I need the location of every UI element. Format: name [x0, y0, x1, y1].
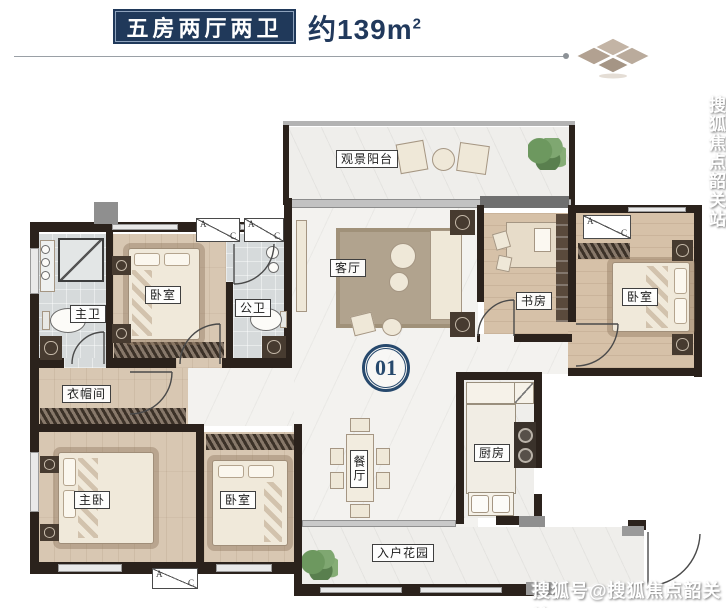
- divider-end-dot: [563, 53, 569, 59]
- corridor-floor: [188, 368, 294, 426]
- dining-chair: [350, 504, 370, 518]
- bedroom-top-label: 卧室: [145, 286, 181, 304]
- shower-stall: [58, 238, 104, 282]
- faucet-knob: [41, 258, 50, 267]
- balcony-plant: [528, 138, 566, 170]
- ac-platform-1: A C: [196, 218, 240, 242]
- garden-window-1: [320, 587, 402, 593]
- bath-cabinet: [40, 336, 62, 360]
- living-planter-bottom: [450, 312, 475, 337]
- bedroom-right-door-gap: [568, 322, 576, 368]
- dining-chair: [330, 472, 344, 489]
- publicbath-door-gap: [226, 240, 233, 282]
- dining-chair: [376, 472, 390, 489]
- kitchen-counter-top: [466, 382, 516, 404]
- pillow: [218, 465, 244, 478]
- masterbath-door-gap: [64, 358, 106, 368]
- sink-bowl: [492, 495, 510, 513]
- hall-lower-left-wall: [294, 424, 302, 590]
- sink-bowl: [471, 495, 489, 513]
- master-bath-label: 主卫: [70, 305, 106, 323]
- nightstand-planter: [672, 334, 693, 355]
- sofa: [430, 230, 462, 320]
- living-planter-top: [450, 210, 475, 235]
- balcony-right-wall: [569, 125, 575, 205]
- ac-platform-3: A C: [583, 215, 631, 239]
- study-label: 书房: [516, 292, 552, 310]
- right-outer-wall: [694, 205, 702, 377]
- stove-burner: [518, 428, 533, 443]
- study-monitor: [534, 228, 551, 252]
- bed-runner: [264, 482, 282, 542]
- garden-plant: [302, 550, 338, 580]
- unit-number: 01: [375, 355, 397, 381]
- faucet-knob: [266, 246, 279, 259]
- kitchen-fridge: [514, 382, 534, 404]
- coffee-table-large: [390, 243, 416, 269]
- nightstand-planter: [672, 240, 693, 261]
- balcony-floor: [289, 127, 569, 201]
- bottom-window-1: [58, 564, 122, 572]
- pillow: [248, 465, 274, 478]
- cloakroom-bottom-wall: [30, 424, 196, 432]
- area-value: 约139m: [308, 14, 413, 45]
- master-bedroom-label: 主卧: [74, 491, 110, 509]
- ac-letter-c: C: [230, 231, 236, 241]
- tv-console: [296, 220, 307, 312]
- balcony-door-frame: [480, 196, 569, 208]
- ac-letter-c: C: [188, 578, 194, 588]
- study-door-gap: [480, 334, 514, 342]
- ac-letter-a: A: [156, 569, 163, 579]
- bottom-window-2: [216, 564, 272, 572]
- living-room-label: 客厅: [330, 259, 366, 277]
- garden-window-2: [420, 587, 502, 593]
- garden-window-strip: [302, 520, 456, 527]
- garden-gray-block: [519, 516, 545, 527]
- balcony-cushion-1: [396, 140, 429, 174]
- masterbed-bedroom-wall: [196, 424, 204, 572]
- area-exponent: 2: [413, 16, 422, 33]
- entry-door-frame-top: [622, 526, 644, 536]
- pillow: [63, 458, 76, 486]
- nightstand-planter: [112, 324, 131, 343]
- balcony-label: 观景阳台: [336, 150, 398, 168]
- side-watermark: 搜狐焦点韶关站: [703, 96, 726, 246]
- ac-letter-c: C: [274, 231, 280, 241]
- kitchen-passage-floor: [478, 342, 570, 374]
- balcony-table: [432, 148, 455, 171]
- dining-room-label: 餐厅: [350, 450, 368, 488]
- nightstand-planter: [112, 256, 131, 275]
- cloakroom-rail: [40, 408, 186, 424]
- header-divider-line: [14, 56, 565, 57]
- toilet-tank: [42, 311, 50, 330]
- bedroom-bottom-wardrobe: [206, 434, 294, 450]
- dining-chair: [350, 418, 370, 432]
- floorplan-page: 五房两厅两卫 约139m2: [0, 0, 726, 608]
- ac-letter-a: A: [248, 219, 255, 229]
- left-window-2: [30, 452, 39, 512]
- bottom-watermark: 搜狐号@搜狐焦点韶关站: [532, 577, 726, 608]
- pillow: [134, 253, 160, 266]
- unit-type-banner: 五房两厅两卫: [113, 9, 296, 44]
- nightstand-planter: [40, 524, 59, 541]
- faucet-knob: [268, 262, 279, 273]
- ac-platform-2: A C: [244, 218, 284, 242]
- study-left-wall: [477, 205, 484, 302]
- bedroom-right-bottom-wall: [568, 368, 702, 376]
- coffee-table-small: [389, 272, 409, 292]
- left-window-1: [30, 248, 39, 294]
- ac-letter-a: A: [587, 216, 594, 226]
- ac-letter-a: A: [200, 219, 207, 229]
- diamond-ornament-icon: [574, 36, 652, 80]
- bedroom-top-door-gap: [176, 358, 222, 368]
- cloakroom-label: 衣帽间: [62, 385, 111, 403]
- study-bookshelf: [556, 214, 568, 322]
- dining-chair: [330, 448, 344, 465]
- pillow: [674, 268, 687, 294]
- pillow: [164, 253, 190, 266]
- top-window-1: [112, 224, 178, 230]
- facade-pillar: [94, 202, 118, 224]
- nightstand-planter: [40, 456, 59, 473]
- balcony-railing: [283, 121, 575, 126]
- kitchen-top-wall: [456, 372, 542, 380]
- public-bath-label: 公卫: [235, 299, 271, 317]
- unit-number-badge: 01: [362, 344, 410, 392]
- kitchen-left-wall: [456, 372, 464, 524]
- faucet-knob: [41, 245, 50, 254]
- bedroom-right-label: 卧室: [622, 288, 658, 306]
- ac-platform-4: A C: [152, 568, 198, 589]
- faucet-knob: [41, 271, 50, 280]
- bedroom-top-wardrobe: [114, 342, 224, 358]
- right-bedroom-window: [628, 207, 686, 212]
- area-text: 约139m2: [308, 8, 422, 48]
- dining-chair: [376, 448, 390, 465]
- bedroom-bottom-label: 卧室: [220, 491, 256, 509]
- balcony-left-wall: [283, 125, 289, 205]
- bedroom-right-wardrobe: [578, 243, 630, 259]
- entry-garden-label: 入户花园: [372, 544, 434, 562]
- pillow: [674, 298, 687, 324]
- balcony-cushion-2: [456, 142, 490, 175]
- bath-cabinet: [262, 336, 286, 358]
- kitchen-label: 厨房: [474, 444, 510, 462]
- stove-burner: [518, 448, 533, 463]
- ac-letter-c: C: [621, 228, 627, 238]
